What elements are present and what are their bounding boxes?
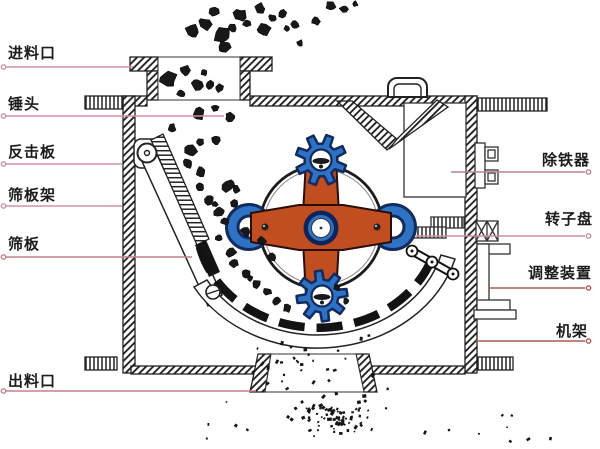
feed-inlet xyxy=(130,57,272,100)
right-wall xyxy=(465,96,477,373)
wall-bolt-plate xyxy=(475,143,485,188)
label-adjust-device: 调整装置 xyxy=(528,265,592,282)
label-screen-frame: 筛板架 xyxy=(8,187,56,204)
deflector-left-arm xyxy=(337,101,398,150)
chute-right-wall xyxy=(240,71,250,100)
outlet-opening xyxy=(265,354,364,392)
chute-left-flange xyxy=(130,57,158,71)
label-impact-plate: 反击板 xyxy=(8,144,56,161)
pivot-pin xyxy=(138,144,157,163)
bracket-bottom-flange xyxy=(477,300,510,310)
label-discharge-outlet: 出料口 xyxy=(8,373,56,390)
flange-bottom-left xyxy=(85,357,117,370)
floor-left xyxy=(131,366,258,374)
label-iron-remover: 除铁器 xyxy=(542,152,590,169)
impact-plate-assembly xyxy=(134,134,222,306)
chute-left-wall xyxy=(147,71,158,100)
rotor-hub xyxy=(304,211,339,246)
flange-top-left xyxy=(85,96,123,109)
wall-bolt-2-head xyxy=(488,173,495,181)
label-feed-inlet: 进料口 xyxy=(8,45,56,62)
wall-bolt-1-head xyxy=(488,150,495,158)
diagram-canvas xyxy=(0,0,600,449)
iron-remover-box xyxy=(404,103,466,197)
flange-top-right xyxy=(477,98,547,111)
floor-right xyxy=(370,366,465,374)
flange-bottom-right xyxy=(477,357,513,370)
label-rotor-disc: 转子盘 xyxy=(545,211,593,228)
arm-bolt-right xyxy=(374,224,381,231)
bracket-foot xyxy=(474,310,516,319)
arm-bolt-left-glint xyxy=(263,225,265,227)
plate-support-arm xyxy=(140,148,222,306)
label-screen-plate: 筛板 xyxy=(8,236,40,253)
label-hammer-head: 锤头 xyxy=(8,96,40,113)
arm-bolt-left xyxy=(262,224,269,231)
rotor-assembly xyxy=(227,135,416,321)
chute-right-flange xyxy=(240,57,272,71)
crusher-diagram: 进料口 锤头 反击板 筛板架 筛板 出料口 除铁器 转子盘 调整装置 机架 xyxy=(0,0,600,449)
left-wall xyxy=(123,96,135,373)
arm-bolt-right-glint xyxy=(375,225,377,227)
label-frame: 机架 xyxy=(556,323,588,340)
shaft-bearing-box xyxy=(476,221,498,241)
